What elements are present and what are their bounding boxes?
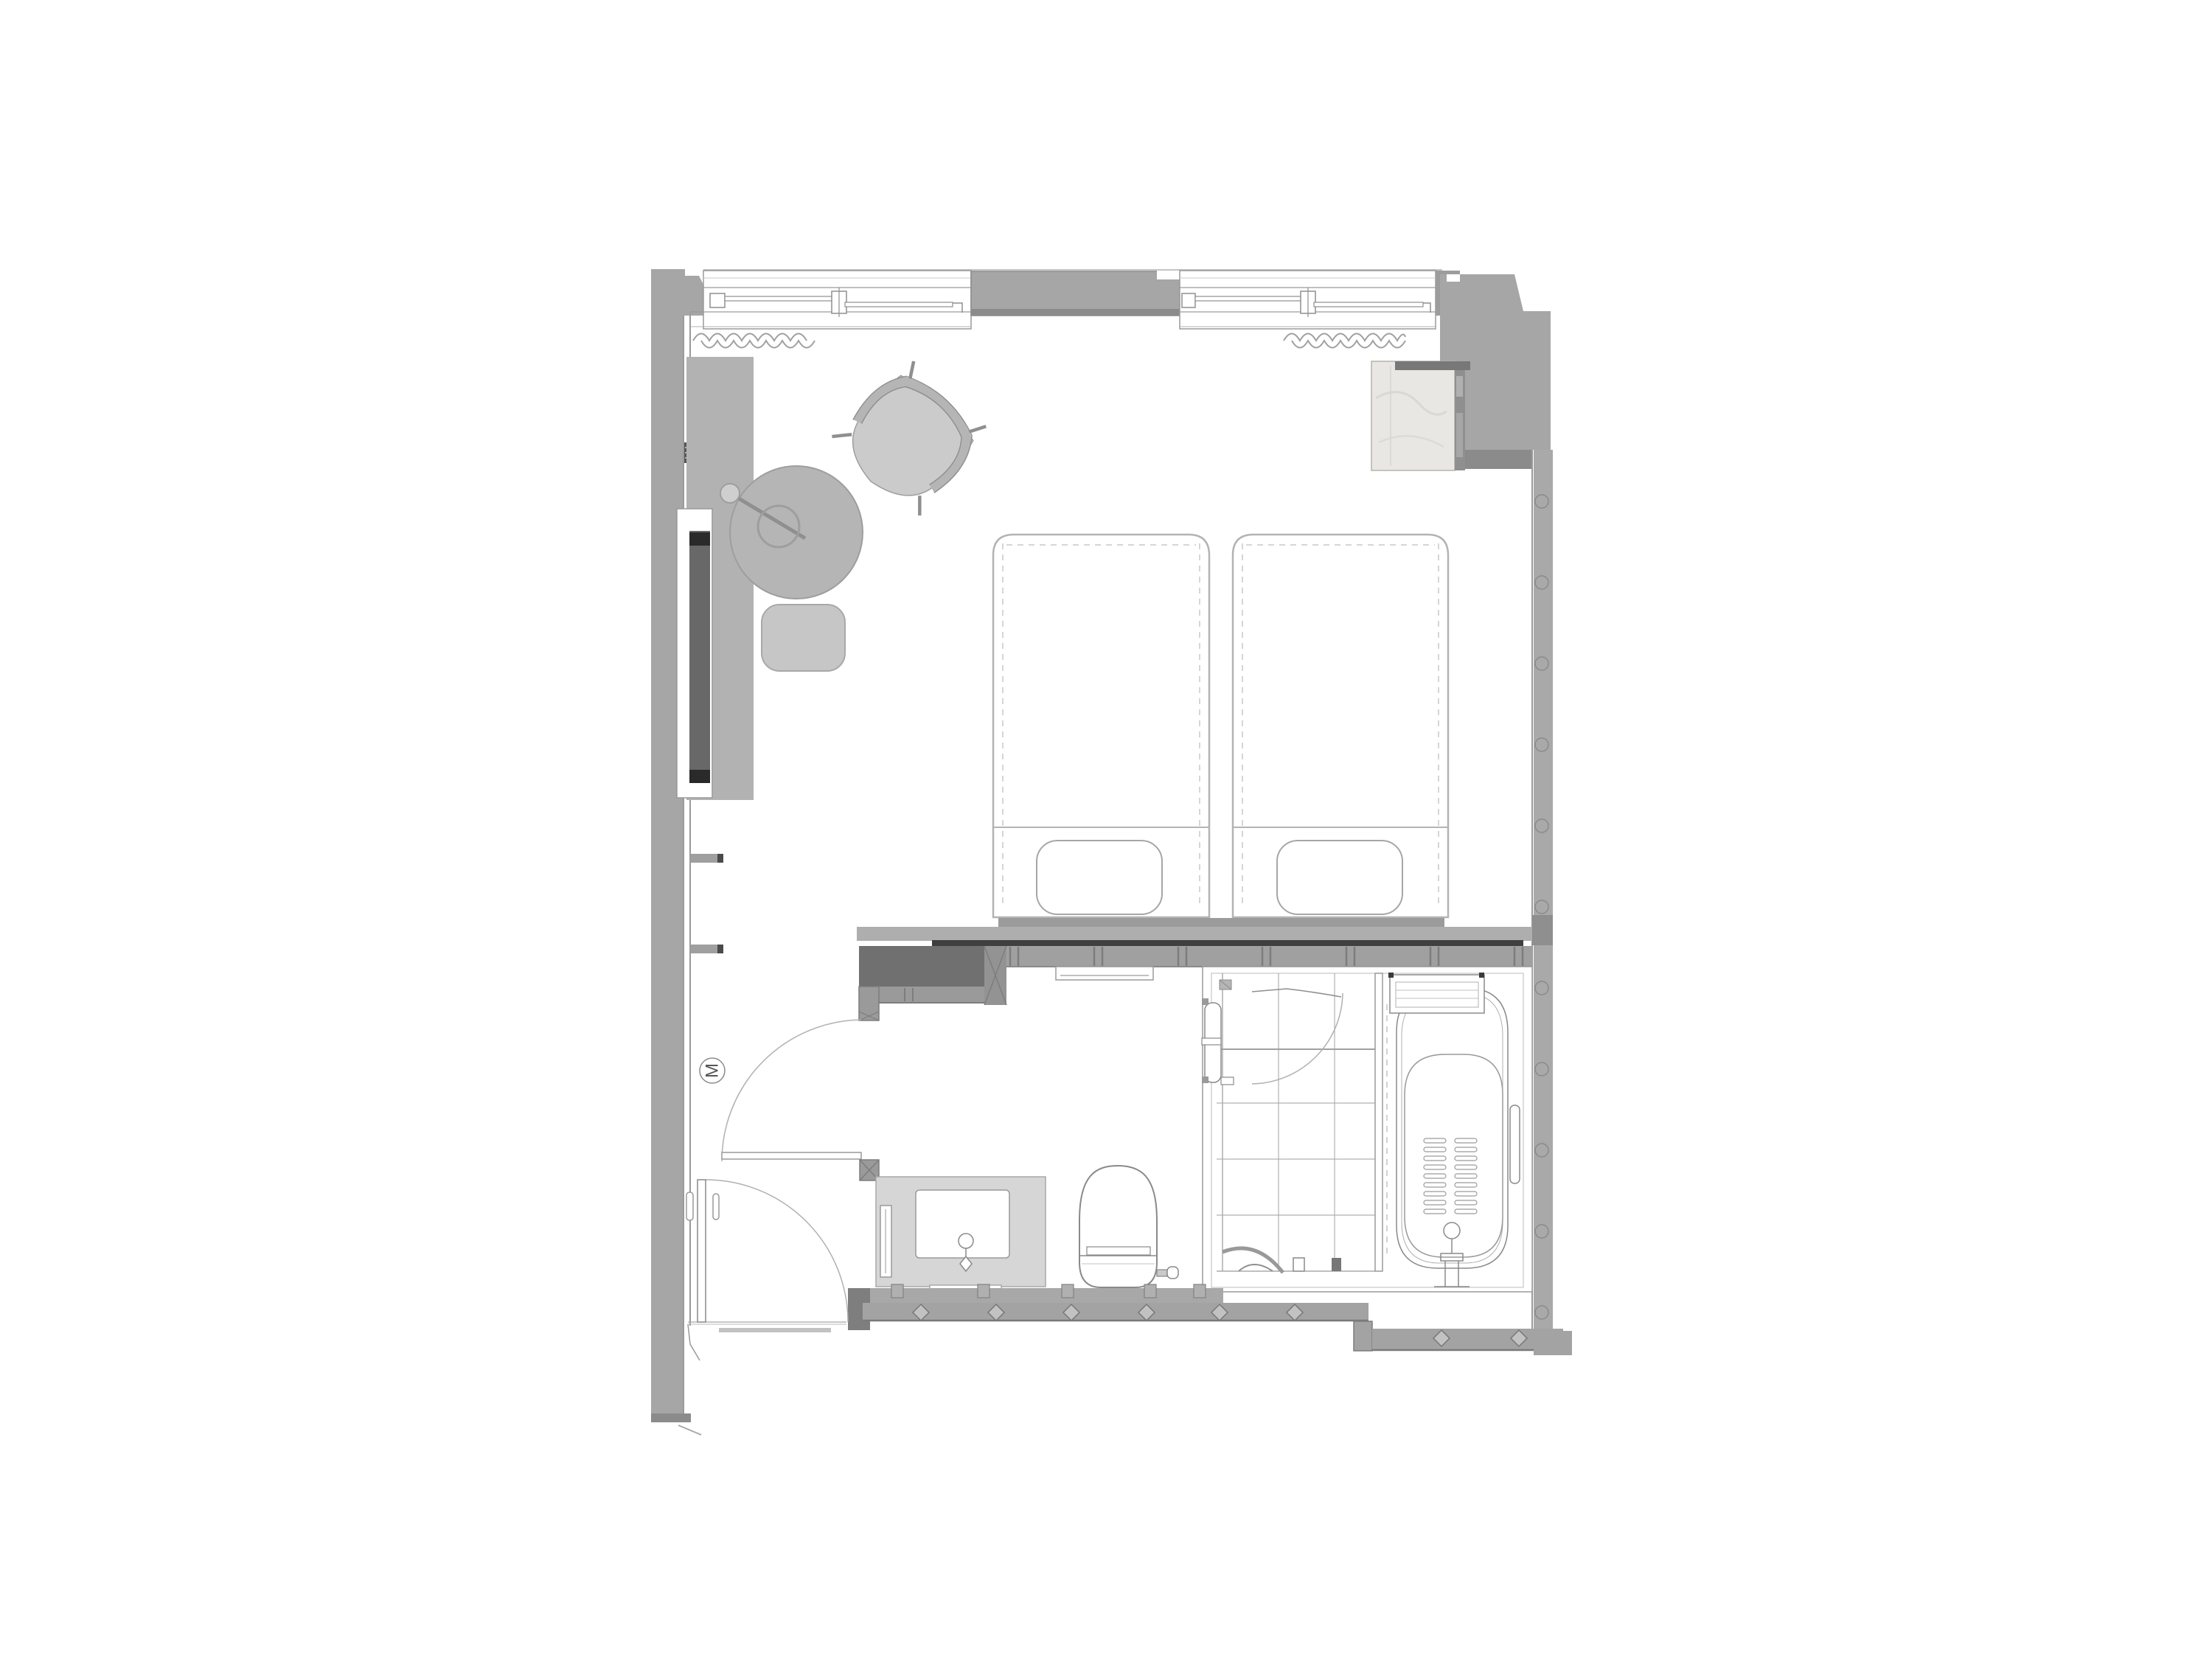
svg-text:M: M <box>703 1063 723 1078</box>
